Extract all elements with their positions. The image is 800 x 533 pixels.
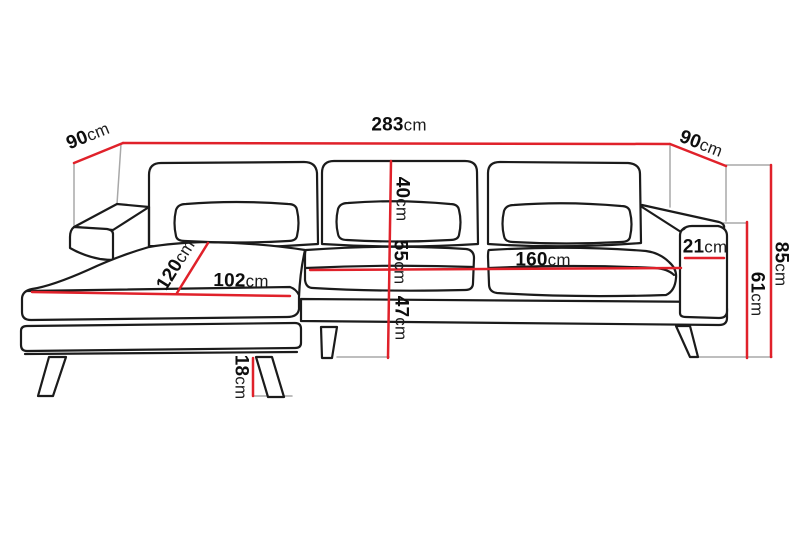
dim-label-total-height: 85cm — [772, 242, 791, 287]
dim-unit: cm — [404, 116, 427, 135]
seat-base-rail — [301, 299, 727, 325]
dim-line-283 — [123, 143, 670, 144]
sofa-dimension-diagram: 283cm 90cm 90cm 40cm 55cm 47cm 120cm 102… — [0, 0, 800, 533]
dim-unit: cm — [245, 272, 268, 291]
sofa-right-leg — [676, 326, 698, 357]
dim-label-back-to-seat-height: 55cm — [391, 240, 410, 285]
dim-label-armrest-width: 21cm — [683, 238, 728, 257]
sofa-outline — [21, 161, 727, 397]
dim-label-leg-height: 18cm — [232, 355, 251, 400]
dim-label-chaise-width: 102cm — [213, 271, 269, 291]
dim-value: 18 — [231, 355, 252, 377]
dim-unit: cm — [548, 251, 571, 270]
dim-unit: cm — [391, 261, 410, 284]
lumbar-pillow-right — [503, 203, 632, 243]
dim-label-armrest-height: 61cm — [748, 272, 767, 317]
dim-value: 47 — [391, 296, 412, 318]
dim-unit: cm — [392, 317, 411, 340]
dim-unit: cm — [704, 238, 727, 257]
chaise-platform — [21, 323, 301, 351]
dim-unit: cm — [748, 293, 767, 316]
chaise-front-leg — [38, 357, 66, 396]
dim-value: 283 — [371, 115, 403, 136]
dim-label-seat-front-height: 47cm — [392, 296, 411, 341]
dim-label-seat-width: 160cm — [515, 251, 570, 270]
dim-unit: cm — [232, 376, 251, 399]
dim-unit: cm — [393, 198, 412, 221]
dim-label-total-width: 283cm — [371, 116, 426, 135]
dim-value: 55 — [390, 240, 411, 262]
dim-value: 40 — [392, 177, 413, 199]
dim-value: 61 — [747, 272, 768, 294]
dim-value: 102 — [213, 270, 246, 292]
left-armrest-front — [70, 227, 113, 260]
left-armrest-top — [74, 204, 149, 230]
chaise-right-leg — [256, 357, 284, 397]
chaise-platform-rim — [25, 352, 297, 354]
dim-unit: cm — [772, 263, 791, 286]
sofa-middle-leg — [321, 327, 337, 358]
dim-value: 160 — [515, 250, 547, 271]
lumbar-pillow-left — [175, 202, 299, 243]
dim-label-backrest-cushion-height: 40cm — [393, 177, 412, 222]
dim-value: 85 — [771, 242, 792, 264]
dim-value: 21 — [683, 237, 705, 258]
